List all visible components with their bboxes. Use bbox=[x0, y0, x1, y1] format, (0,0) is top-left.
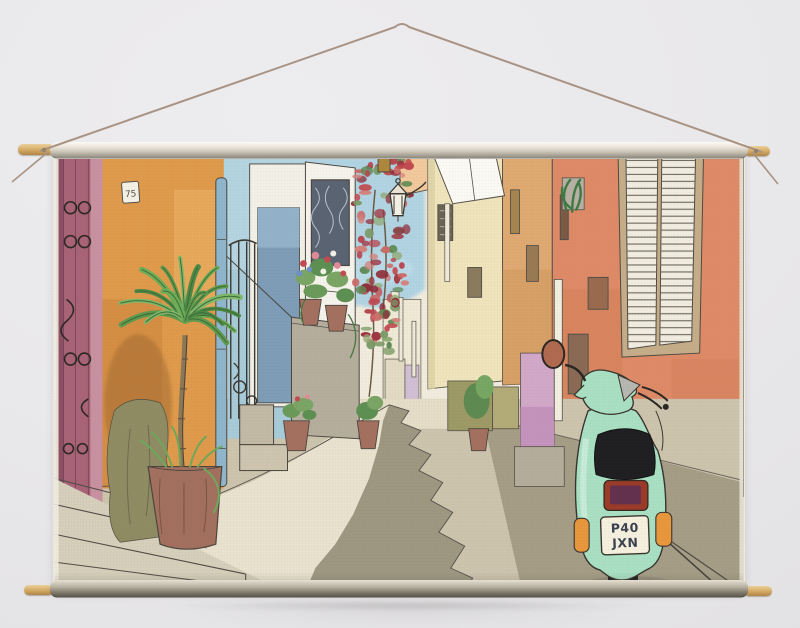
license-plate-line1: P40 bbox=[611, 520, 639, 536]
louvered-shutter bbox=[618, 150, 704, 357]
tapestry-poster: 75 bbox=[53, 150, 745, 592]
wall-soft-shadow bbox=[90, 606, 720, 624]
scooter-mirror bbox=[542, 340, 564, 368]
bottom-dowel-sleeve bbox=[50, 580, 748, 598]
wall-plant bbox=[562, 178, 584, 212]
cord-loose-end-right bbox=[752, 152, 778, 184]
wall-hanging-photo: 75 bbox=[0, 0, 800, 628]
license-plate-line2: JXN bbox=[611, 535, 639, 551]
fabric-left-edge bbox=[55, 150, 59, 592]
left-indicator bbox=[574, 518, 589, 552]
right-indicator bbox=[656, 512, 672, 546]
terracotta-planter bbox=[148, 467, 222, 550]
license-plate: P40 JXN bbox=[600, 516, 649, 555]
top-dowel-left-tip bbox=[18, 144, 54, 155]
top-dowel-sleeve bbox=[50, 142, 748, 159]
fabric-right-edge bbox=[739, 150, 743, 592]
watercolor-artwork: 75 bbox=[53, 150, 745, 592]
bottom-dowel-right-tip bbox=[744, 586, 772, 596]
scooter-seat bbox=[595, 429, 656, 480]
house-number-plaque: 75 bbox=[121, 181, 139, 203]
house-number: 75 bbox=[125, 189, 137, 200]
cord-loose-end-left bbox=[12, 152, 48, 182]
